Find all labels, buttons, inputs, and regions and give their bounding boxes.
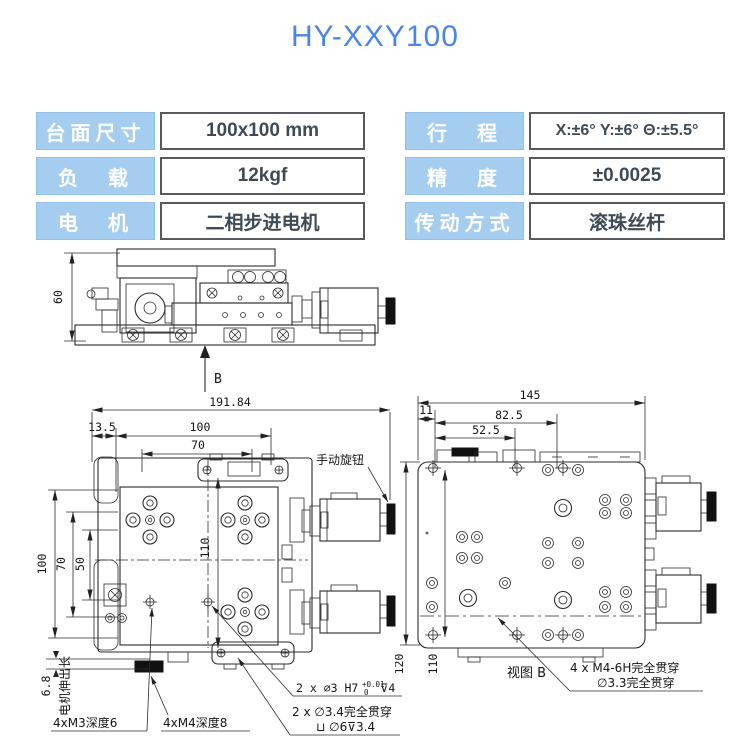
spec-row: 负 载 12kgf: [36, 157, 365, 195]
dim-overall-width: 191.84: [209, 395, 251, 409]
spec-table-left: 台面尺寸 100x100 mm 负 载 12kgf 电 机 二相步进电机: [36, 112, 365, 247]
spec-row: 行 程 X:±6° Y:±6° Θ:±5.5°: [405, 112, 725, 150]
spec-value-accuracy: ±0.0025: [529, 157, 725, 195]
dim-hole-pitch: 70: [191, 438, 205, 452]
spec-value-table-size: 100x100 mm: [160, 112, 365, 150]
dim-145: 145: [520, 390, 541, 402]
note-drill-thru: ∅3.3完全贯穿: [597, 675, 675, 690]
dim-v50: 50: [73, 557, 87, 571]
spec-row: 电 机 二相步进电机: [36, 202, 365, 240]
spec-label-load: 负 载: [36, 157, 155, 195]
note-pin-holes: 2 x ∅3 H7: [296, 681, 358, 695]
dim-v110: 110: [198, 538, 212, 559]
page-title: HY-XXY100: [0, 20, 750, 54]
side-view-drawing: 60: [40, 245, 400, 395]
dim-v100: 100: [35, 554, 49, 575]
label-m4-holes: 4xM4深度8: [163, 715, 227, 730]
spec-table-right: 行 程 X:±6° Y:±6° Θ:±5.5° 精 度 ±0.0025 传动方式…: [405, 112, 725, 247]
note-thru-holes-2: ⊔ ∅6⊽3.4: [316, 720, 375, 734]
dim-52-5: 52.5: [472, 423, 500, 437]
spec-label-table-size: 台面尺寸: [36, 112, 155, 150]
spec-label-motor: 电 机: [36, 202, 155, 240]
spec-value-drive: 滚珠丝杆: [529, 202, 725, 240]
dim-82-5: 82.5: [495, 408, 523, 422]
datasheet-page: HY-XXY100 台面尺寸 100x100 mm 负 载 12kgf 电 机 …: [0, 0, 750, 750]
spec-value-motor: 二相步进电机: [160, 202, 365, 240]
spec-row: 精 度 ±0.0025: [405, 157, 725, 195]
note-pin-depth: ⊽4: [380, 681, 395, 695]
hole-group-1: [126, 496, 174, 544]
label-manual-knob: 手动旋钮: [316, 452, 364, 467]
spec-row: 台面尺寸 100x100 mm: [36, 112, 365, 150]
view-b-title: 视图 B: [507, 666, 546, 681]
plan-view-drawing: 191.84 13.5 100 70 100 70 50 110: [30, 395, 410, 750]
dim-offset: 13.5: [88, 420, 116, 434]
dim-11: 11: [419, 403, 433, 417]
spec-label-drive: 传动方式: [405, 202, 524, 240]
dim-motor-ext: 6.8: [39, 676, 53, 697]
pin-hole: [143, 595, 157, 609]
dim-v120: 120: [395, 654, 406, 675]
screw-holes: [426, 465, 632, 641]
hole-group-2: [221, 496, 269, 544]
spec-row: 传动方式 滚珠丝杆: [405, 202, 725, 240]
dim-side-height: 60: [51, 290, 65, 304]
section-arrow-label: B: [214, 372, 222, 387]
view-b-drawing: 145 11 82.5 52.5 120 110: [395, 390, 750, 710]
note-thru-holes-1: 2 x ∅3.4完全贯穿: [292, 704, 392, 719]
corner-cross-holes: [425, 460, 571, 643]
hole-group-3: [221, 588, 269, 636]
spec-value-load: 12kgf: [160, 157, 365, 195]
spec-label-travel: 行 程: [405, 112, 524, 150]
dim-table-width: 100: [190, 420, 211, 434]
dim-v70: 70: [54, 557, 68, 571]
spec-label-accuracy: 精 度: [405, 157, 524, 195]
label-m3-holes: 4xM3深度6: [53, 715, 117, 730]
dim-v110-b: 110: [426, 654, 440, 675]
label-motor-extension: 电机伸出长: [58, 656, 72, 716]
spec-value-travel: X:±6° Y:±6° Θ:±5.5°: [529, 112, 725, 150]
note-m4-thru: 4 x M4-6H完全贯穿: [570, 660, 679, 675]
